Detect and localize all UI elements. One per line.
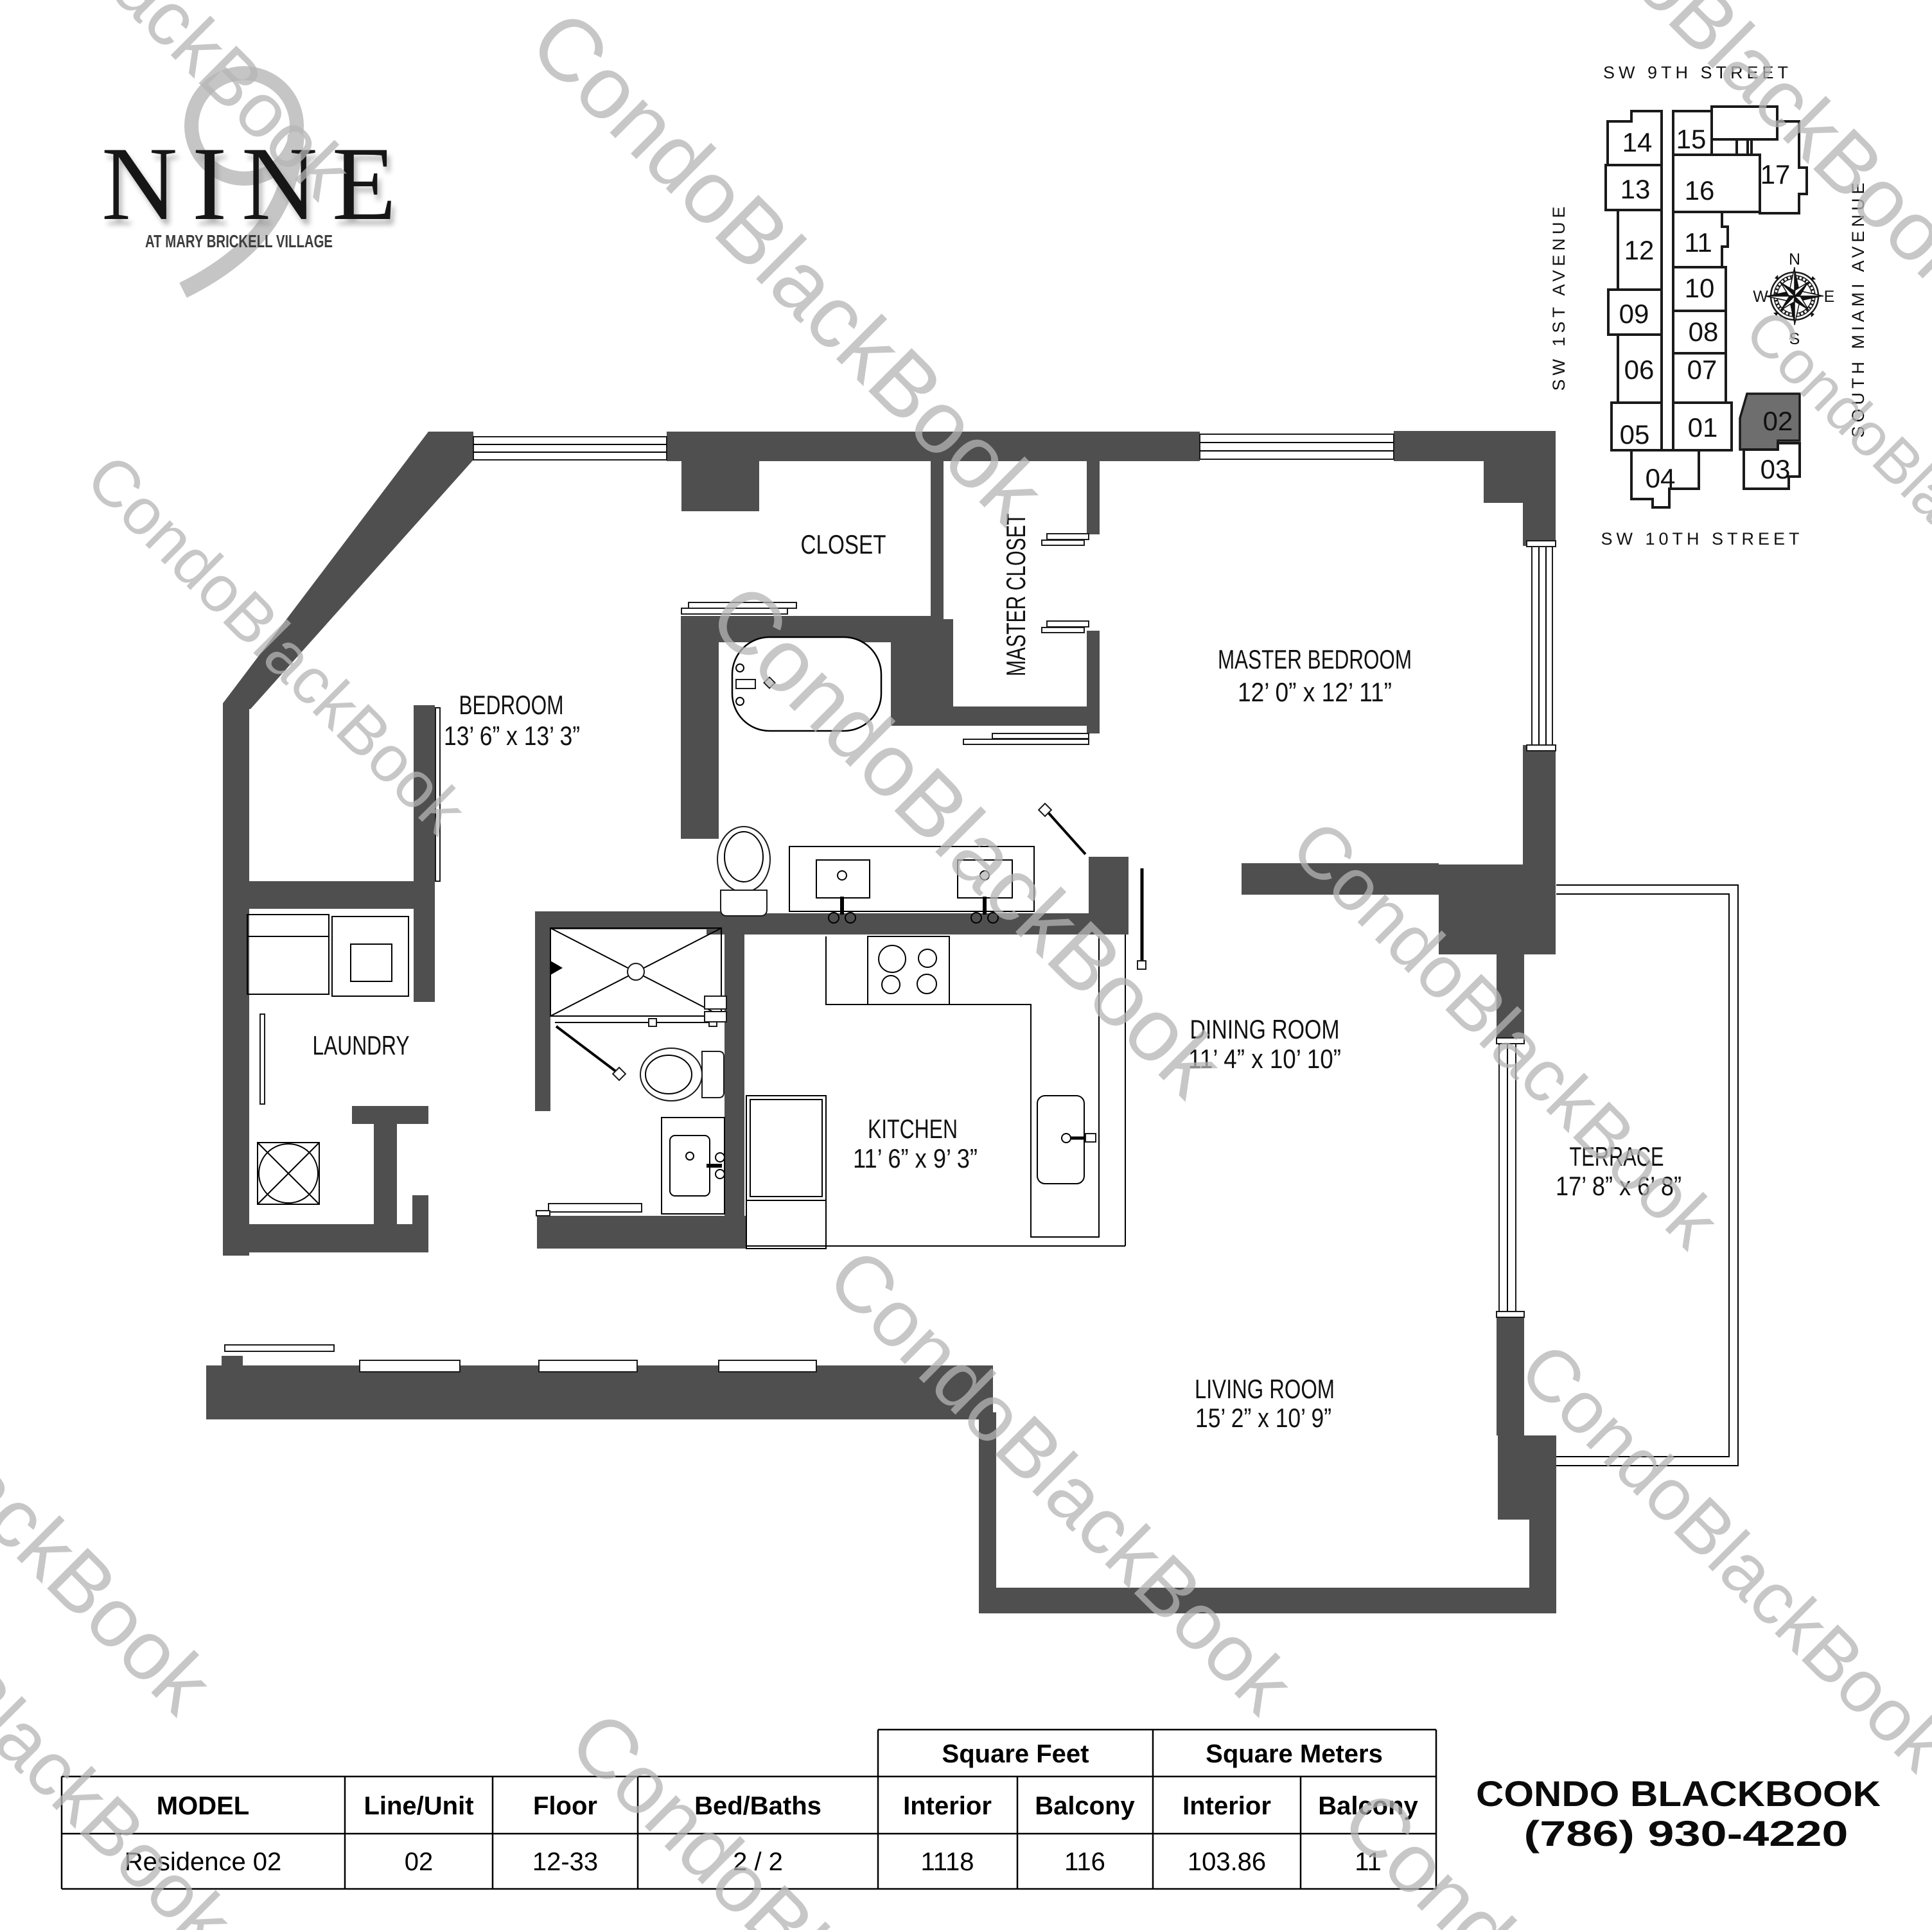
- svg-text:103.86: 103.86: [1188, 1848, 1266, 1876]
- svg-text:12: 12: [1624, 235, 1655, 265]
- svg-text:03: 03: [1761, 454, 1791, 484]
- svg-text:13: 13: [1620, 174, 1651, 204]
- svg-text:LIVING ROOM: LIVING ROOM: [1195, 1374, 1335, 1404]
- svg-text:SW 10TH STREET: SW 10TH STREET: [1601, 529, 1803, 548]
- svg-text:01: 01: [1688, 412, 1718, 443]
- svg-text:15: 15: [1676, 124, 1707, 154]
- svg-text:Line/Unit: Line/Unit: [364, 1792, 473, 1820]
- svg-text:13’ 6” x 13’ 3”: 13’ 6” x 13’ 3”: [444, 721, 580, 751]
- svg-text:CLOSET: CLOSET: [801, 529, 886, 559]
- svg-text:06: 06: [1624, 355, 1655, 385]
- svg-text:Square Feet: Square Feet: [942, 1740, 1089, 1768]
- svg-text:Balcony: Balcony: [1035, 1792, 1135, 1820]
- svg-text:07: 07: [1687, 355, 1717, 385]
- svg-text:12’ 0” x 12’ 11”: 12’ 0” x 12’ 11”: [1238, 677, 1392, 707]
- svg-text:08: 08: [1689, 317, 1719, 347]
- svg-text:116: 116: [1064, 1848, 1105, 1876]
- svg-text:MASTER CLOSET: MASTER CLOSET: [1001, 513, 1031, 676]
- svg-text:Square Meters: Square Meters: [1206, 1740, 1383, 1768]
- svg-text:05: 05: [1620, 419, 1650, 450]
- svg-text:SW 1ST AVENUE: SW 1ST AVENUE: [1549, 202, 1568, 390]
- svg-text:E: E: [1824, 288, 1835, 306]
- svg-text:MODEL: MODEL: [157, 1792, 249, 1820]
- svg-text:09: 09: [1619, 299, 1649, 329]
- svg-text:(786) 930-4220: (786) 930-4220: [1524, 1813, 1849, 1854]
- svg-text:1118: 1118: [920, 1848, 974, 1876]
- svg-text:02: 02: [405, 1848, 434, 1876]
- svg-text:15’ 2” x 10’ 9”: 15’ 2” x 10’ 9”: [1195, 1403, 1331, 1433]
- svg-text:16: 16: [1685, 175, 1715, 206]
- svg-text:11’ 6” x 9’ 3”: 11’ 6” x 9’ 3”: [853, 1143, 978, 1173]
- svg-text:LAUNDRY: LAUNDRY: [313, 1030, 410, 1060]
- svg-text:12-33: 12-33: [532, 1848, 598, 1876]
- svg-text:Interior: Interior: [1182, 1792, 1271, 1820]
- svg-text:BEDROOM: BEDROOM: [459, 690, 564, 720]
- svg-text:10: 10: [1685, 273, 1715, 303]
- svg-text:Interior: Interior: [903, 1792, 992, 1820]
- svg-text:W: W: [1753, 288, 1768, 306]
- svg-text:11: 11: [1684, 227, 1712, 258]
- svg-text:Floor: Floor: [533, 1792, 597, 1820]
- svg-text:MASTER BEDROOM: MASTER BEDROOM: [1218, 644, 1412, 674]
- svg-text:AT MARY BRICKELL VILLAGE: AT MARY BRICKELL VILLAGE: [145, 231, 333, 251]
- svg-text:14: 14: [1622, 127, 1653, 157]
- svg-text:KITCHEN: KITCHEN: [868, 1114, 958, 1144]
- svg-text:N: N: [1789, 250, 1800, 268]
- svg-text:CONDO BLACKBOOK: CONDO BLACKBOOK: [1476, 1773, 1881, 1814]
- svg-text:04: 04: [1646, 463, 1676, 493]
- svg-text:02: 02: [1763, 406, 1793, 436]
